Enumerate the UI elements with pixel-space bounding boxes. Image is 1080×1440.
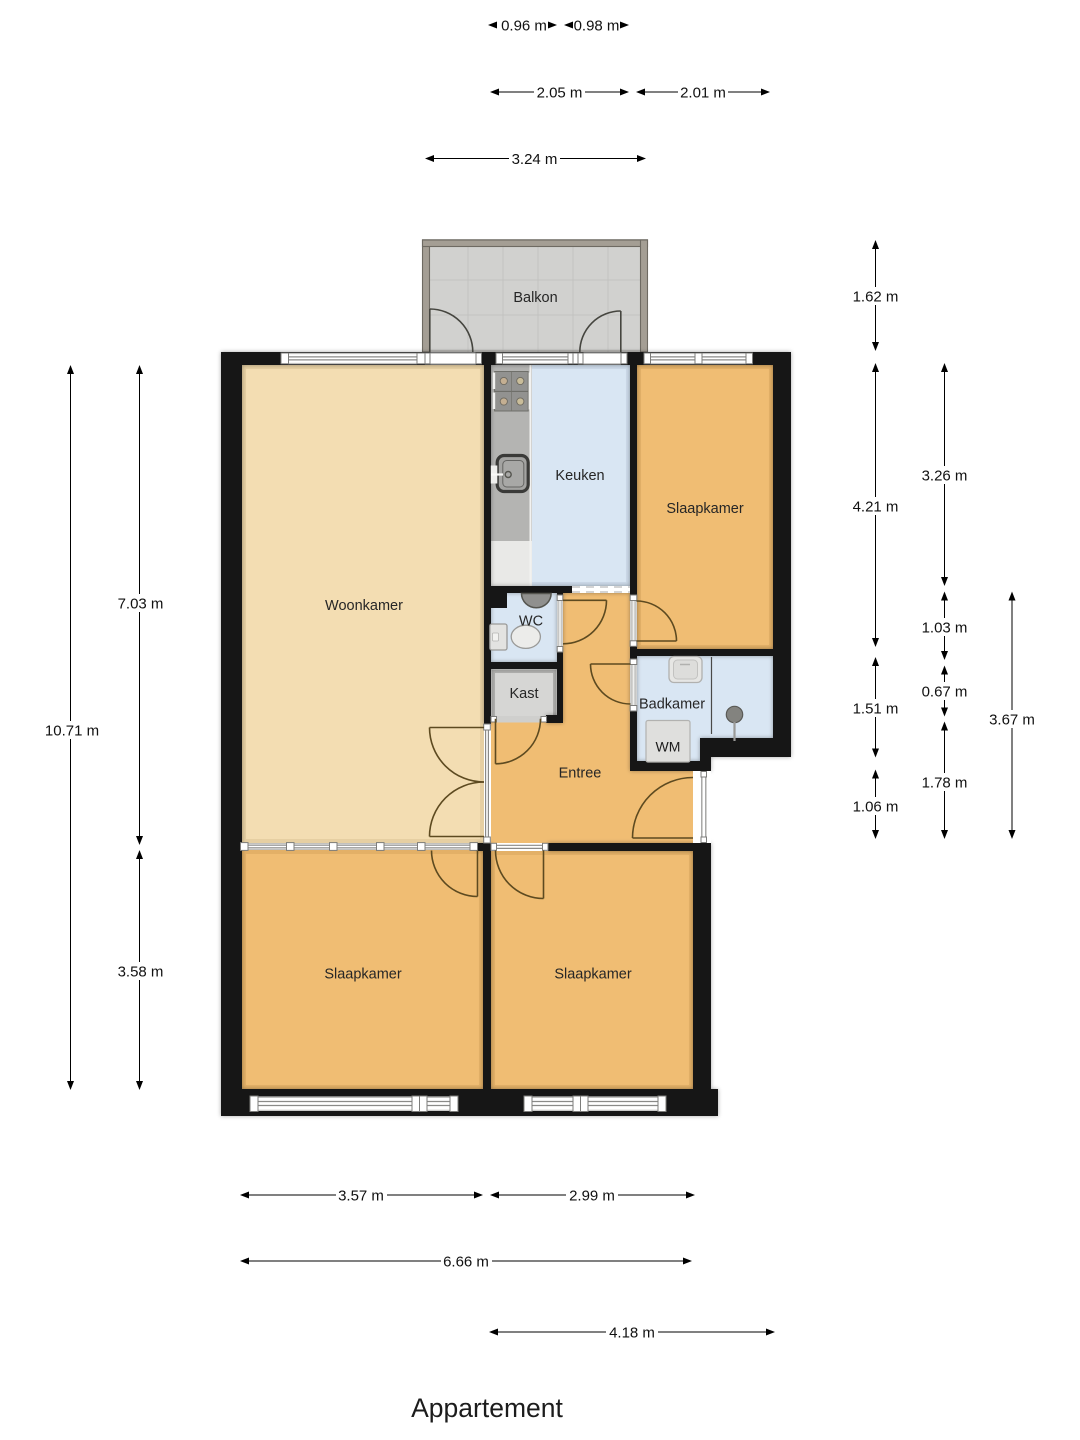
svg-text:Slaapkamer: Slaapkamer xyxy=(666,501,744,517)
svg-text:WM: WM xyxy=(656,739,681,755)
svg-text:Entree: Entree xyxy=(559,766,602,782)
svg-text:Badkamer: Badkamer xyxy=(639,697,705,713)
svg-text:3.24 m: 3.24 m xyxy=(512,151,558,168)
svg-text:3.26 m: 3.26 m xyxy=(922,468,968,485)
svg-text:1.62 m: 1.62 m xyxy=(853,289,899,306)
svg-text:1.78 m: 1.78 m xyxy=(922,775,968,792)
svg-text:7.03 m: 7.03 m xyxy=(118,596,164,613)
svg-text:Kast: Kast xyxy=(509,686,538,702)
svg-text:Appartement: Appartement xyxy=(411,1393,563,1423)
svg-text:2.01 m: 2.01 m xyxy=(680,85,726,102)
svg-text:WC: WC xyxy=(519,614,543,630)
svg-text:4.18 m: 4.18 m xyxy=(609,1325,655,1342)
svg-text:2.05 m: 2.05 m xyxy=(537,85,583,102)
svg-text:0.96 m: 0.96 m xyxy=(501,18,547,35)
svg-text:3.67 m: 3.67 m xyxy=(989,712,1035,729)
svg-text:10.71 m: 10.71 m xyxy=(45,723,99,740)
svg-text:Slaapkamer: Slaapkamer xyxy=(554,967,632,983)
svg-text:1.06 m: 1.06 m xyxy=(853,799,899,816)
svg-text:4.21 m: 4.21 m xyxy=(853,499,899,516)
svg-text:0.67 m: 0.67 m xyxy=(922,684,968,701)
svg-text:Balkon: Balkon xyxy=(513,290,557,306)
svg-text:6.66 m: 6.66 m xyxy=(443,1254,489,1271)
svg-text:2.99 m: 2.99 m xyxy=(569,1188,615,1205)
svg-text:0.98 m: 0.98 m xyxy=(574,18,620,35)
svg-text:Slaapkamer: Slaapkamer xyxy=(324,967,402,983)
svg-text:Keuken: Keuken xyxy=(555,468,604,484)
svg-text:Woonkamer: Woonkamer xyxy=(325,598,403,614)
svg-text:1.03 m: 1.03 m xyxy=(922,620,968,637)
svg-text:1.51 m: 1.51 m xyxy=(853,701,899,718)
svg-text:3.58 m: 3.58 m xyxy=(118,964,164,981)
svg-text:3.57 m: 3.57 m xyxy=(338,1188,384,1205)
